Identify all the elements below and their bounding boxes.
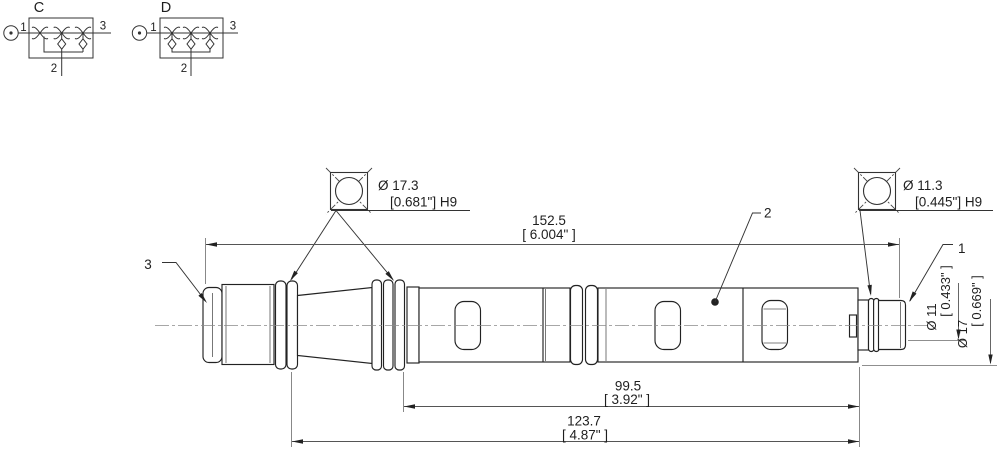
dim-dia-large-mm: Ø 17 (955, 320, 970, 348)
dim-arrow (292, 439, 303, 443)
leader-arrow (909, 291, 917, 302)
bore-circle-icon (864, 178, 891, 205)
dim-arrow (206, 242, 217, 246)
dim-mid-inch: [ 3.92" ] (604, 392, 650, 407)
dim-arrow (988, 355, 992, 365)
rib-ring (586, 286, 598, 365)
clamp-ring (372, 280, 382, 370)
bore-left-dia: Ø 17.3 (378, 178, 419, 193)
schematic-d-port-2: 2 (181, 63, 187, 75)
schematic-d: D 1 3 2 (132, 0, 238, 76)
schematic-c-title: C (34, 0, 44, 16)
dim-overall: 152.5 [ 6.004" ] (206, 213, 900, 298)
engineering-drawing: C 1 3 2 D 1 3 (0, 0, 1000, 450)
sleeve-cylinder (222, 285, 274, 365)
keyway-notch (850, 315, 857, 337)
dim-long: 123.7 [ 4.87" ] (292, 367, 860, 447)
tip-cylinder (879, 301, 906, 350)
schematic-d-port-3: 3 (230, 21, 236, 33)
schematic-d-title: D (161, 0, 171, 16)
dim-dia-small-mm: Ø 11 (924, 303, 939, 330)
dim-arrow (888, 242, 899, 246)
dim-arrow (848, 439, 859, 443)
leader-line (860, 211, 871, 295)
bore-circle-icon (336, 178, 363, 205)
slot-window-3 (762, 301, 788, 350)
schematic-c-port-3: 3 (100, 21, 106, 33)
collar (407, 287, 419, 363)
port-1-dot (9, 31, 12, 34)
schematic-c-port-1: 1 (20, 22, 26, 34)
dim-mid: 99.5 [ 3.92" ] (404, 372, 860, 412)
part-view (155, 280, 935, 370)
bore-callout-left: Ø 17.3 [0.681"] H9 (290, 168, 470, 281)
clamp-ring (287, 281, 298, 369)
rib-ring (571, 286, 583, 365)
schematic-d-port-1: 1 (150, 22, 156, 34)
technical-drawing-page: C 1 3 2 D 1 3 (0, 0, 1000, 450)
leader-arrow (867, 285, 871, 296)
clamp-ring (395, 280, 405, 370)
callout-3-label: 3 (144, 257, 152, 272)
body-section-1 (419, 288, 570, 362)
dim-overall-inch: [ 6.004" ] (522, 227, 576, 242)
dim-arrow (848, 404, 859, 408)
dim-long-inch: [ 4.87" ] (562, 428, 608, 443)
callout-3: 3 (144, 257, 207, 303)
bore-right-dia: Ø 11.3 (903, 178, 943, 193)
port-1-dot (138, 31, 141, 34)
leader-line (336, 211, 393, 280)
callout-1-label: 1 (958, 241, 966, 256)
bore-right-tol: [0.445"] H9 (915, 195, 982, 210)
check-valves (168, 33, 214, 76)
leader-line (292, 211, 337, 280)
dim-dia-small-inch: [ 0.433" ] (938, 265, 953, 317)
tip-step (858, 300, 869, 350)
dim-long-mm: 123.7 (567, 414, 601, 429)
dim-arrow (404, 404, 415, 408)
schematic-c-port-2: 2 (51, 63, 57, 75)
body-section-2 (598, 288, 858, 362)
bore-left-tol: [0.681"] H9 (390, 195, 457, 210)
clamp-ring (384, 280, 394, 370)
leader-line (162, 263, 206, 302)
schematic-c: C 1 3 2 (4, 0, 111, 76)
dim-dia-large-inch: [ 0.669" ] (969, 275, 984, 327)
clamp-ring (276, 281, 287, 369)
callout-2-label: 2 (764, 206, 772, 221)
dim-overall-mm: 152.5 (532, 213, 566, 228)
